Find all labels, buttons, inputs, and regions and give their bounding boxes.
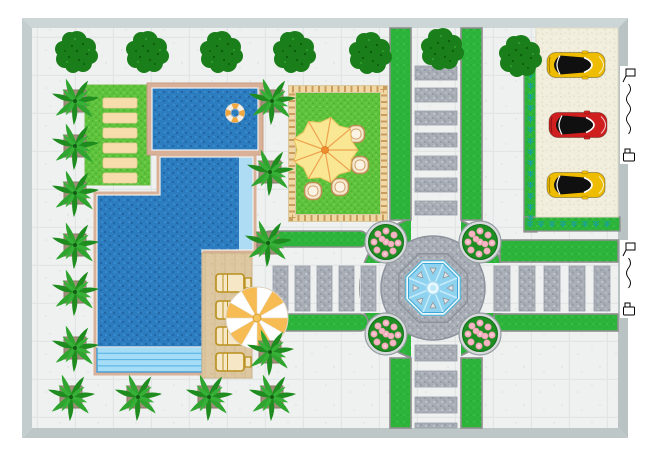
roadside-green-strip[interactable]: [390, 358, 411, 428]
crosswalk-stripe[interactable]: [415, 133, 457, 147]
selection-handle-strip[interactable]: [620, 240, 639, 318]
sunbed[interactable]: [103, 173, 137, 183]
crosswalk-stripe[interactable]: [594, 266, 610, 311]
plan-canvas: [0, 0, 650, 460]
crosswalk-stripe[interactable]: [415, 371, 457, 387]
crosswalk-stripe[interactable]: [415, 397, 457, 413]
roadside-green-strip[interactable]: [390, 28, 411, 220]
crosswalk-stripe[interactable]: [415, 156, 457, 170]
crosswalk-stripe[interactable]: [415, 201, 457, 215]
lifebuoy[interactable]: [226, 104, 245, 123]
flower-bed[interactable]: [459, 313, 501, 355]
crosswalk-stripe[interactable]: [415, 111, 457, 125]
crosswalk-stripe[interactable]: [494, 266, 510, 311]
crosswalk-stripe[interactable]: [569, 266, 585, 311]
sunbed[interactable]: [103, 143, 137, 153]
crosswalk-stripe[interactable]: [415, 88, 457, 102]
flower-bed[interactable]: [365, 313, 407, 355]
crosswalk-stripe[interactable]: [415, 345, 457, 361]
roadside-green-strip[interactable]: [461, 358, 482, 428]
fountain-center-jet: [430, 285, 436, 291]
fountain[interactable]: [399, 254, 467, 322]
roadside-green-strip[interactable]: [461, 28, 482, 220]
sunbed[interactable]: [103, 128, 137, 138]
crosswalk-stripe[interactable]: [317, 266, 332, 311]
flower-bed[interactable]: [365, 221, 407, 263]
sunbed[interactable]: [103, 98, 137, 108]
crosswalk-stripe[interactable]: [361, 266, 376, 311]
garden-chair[interactable]: [352, 157, 369, 174]
red-sports-car[interactable]: [549, 111, 607, 139]
flower-bed[interactable]: [459, 221, 501, 263]
sunbed[interactable]: [103, 113, 137, 123]
garden-chair[interactable]: [305, 183, 322, 200]
crosswalk-stripe[interactable]: [339, 266, 354, 311]
crosswalk-stripe[interactable]: [415, 178, 457, 192]
selection-handle-strip[interactable]: [620, 66, 639, 164]
yellow-sports-car[interactable]: [547, 51, 605, 79]
crosswalk-stripe[interactable]: [519, 266, 535, 311]
crosswalk-stripe[interactable]: [295, 266, 310, 311]
crosswalk-stripe[interactable]: [415, 423, 457, 428]
roadside-green-strip[interactable]: [494, 314, 618, 331]
garden-chair[interactable]: [332, 179, 349, 196]
crosswalk-stripe[interactable]: [544, 266, 560, 311]
roadside-green-strip[interactable]: [500, 240, 618, 262]
yellow-sports-car[interactable]: [547, 171, 605, 199]
sunbed[interactable]: [103, 158, 137, 168]
